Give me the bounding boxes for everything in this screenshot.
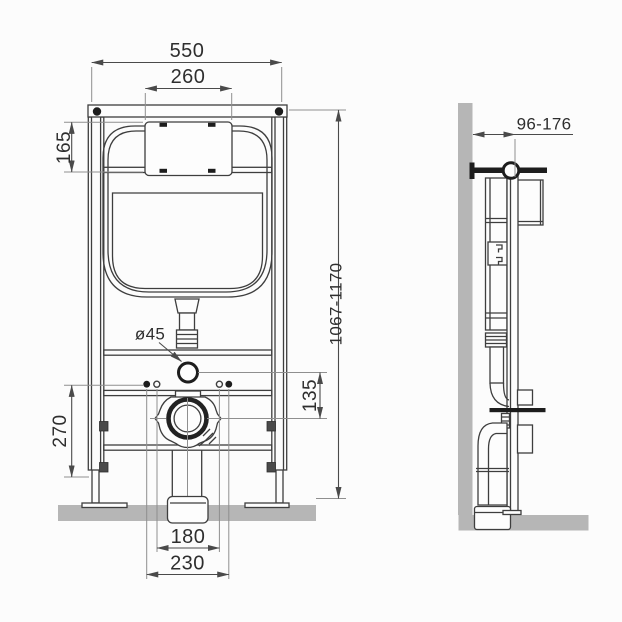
wall-support-rod <box>470 163 548 180</box>
installation-frame-drawing: 550 260 165 270 135 <box>0 0 622 622</box>
flush-plate <box>145 122 232 176</box>
dim-frame-width-label: 550 <box>170 40 205 62</box>
top-rail <box>88 105 287 117</box>
side-drain-assembly <box>475 414 533 530</box>
dim-lower-fixing: 270 <box>50 385 144 477</box>
dim-inlet-diameter: ø45 <box>135 325 182 362</box>
top-bolt-left <box>93 107 101 115</box>
front-view <box>58 105 316 523</box>
dim-wall-offset-label: 96-176 <box>517 115 572 134</box>
inlet-hole <box>179 363 198 382</box>
dim-lower-fixing-label: 270 <box>50 414 71 447</box>
drain-base <box>168 497 209 524</box>
dim-plate-width-label: 260 <box>171 66 206 88</box>
top-bolt-right <box>275 107 283 115</box>
dim-frame-height: 1067-1170 <box>289 110 346 499</box>
technical-drawing-page: 550 260 165 270 135 <box>0 0 622 622</box>
dim-outer-bolt-spacing-label: 230 <box>170 553 205 575</box>
dim-plate-height: 165 <box>54 122 143 172</box>
dim-inlet-to-outlet-label: 135 <box>300 379 321 412</box>
dim-plate-height-label: 165 <box>54 131 75 164</box>
dim-frame-height-label: 1067-1170 <box>327 263 346 346</box>
dim-inner-bolt-spacing-label: 180 <box>171 526 206 548</box>
dim-inlet-diameter-label: ø45 <box>135 325 165 344</box>
lower-mounting-bar <box>490 408 546 412</box>
flush-bend <box>175 299 199 348</box>
side-view <box>458 103 589 531</box>
rod-adjuster-nut <box>503 163 519 179</box>
